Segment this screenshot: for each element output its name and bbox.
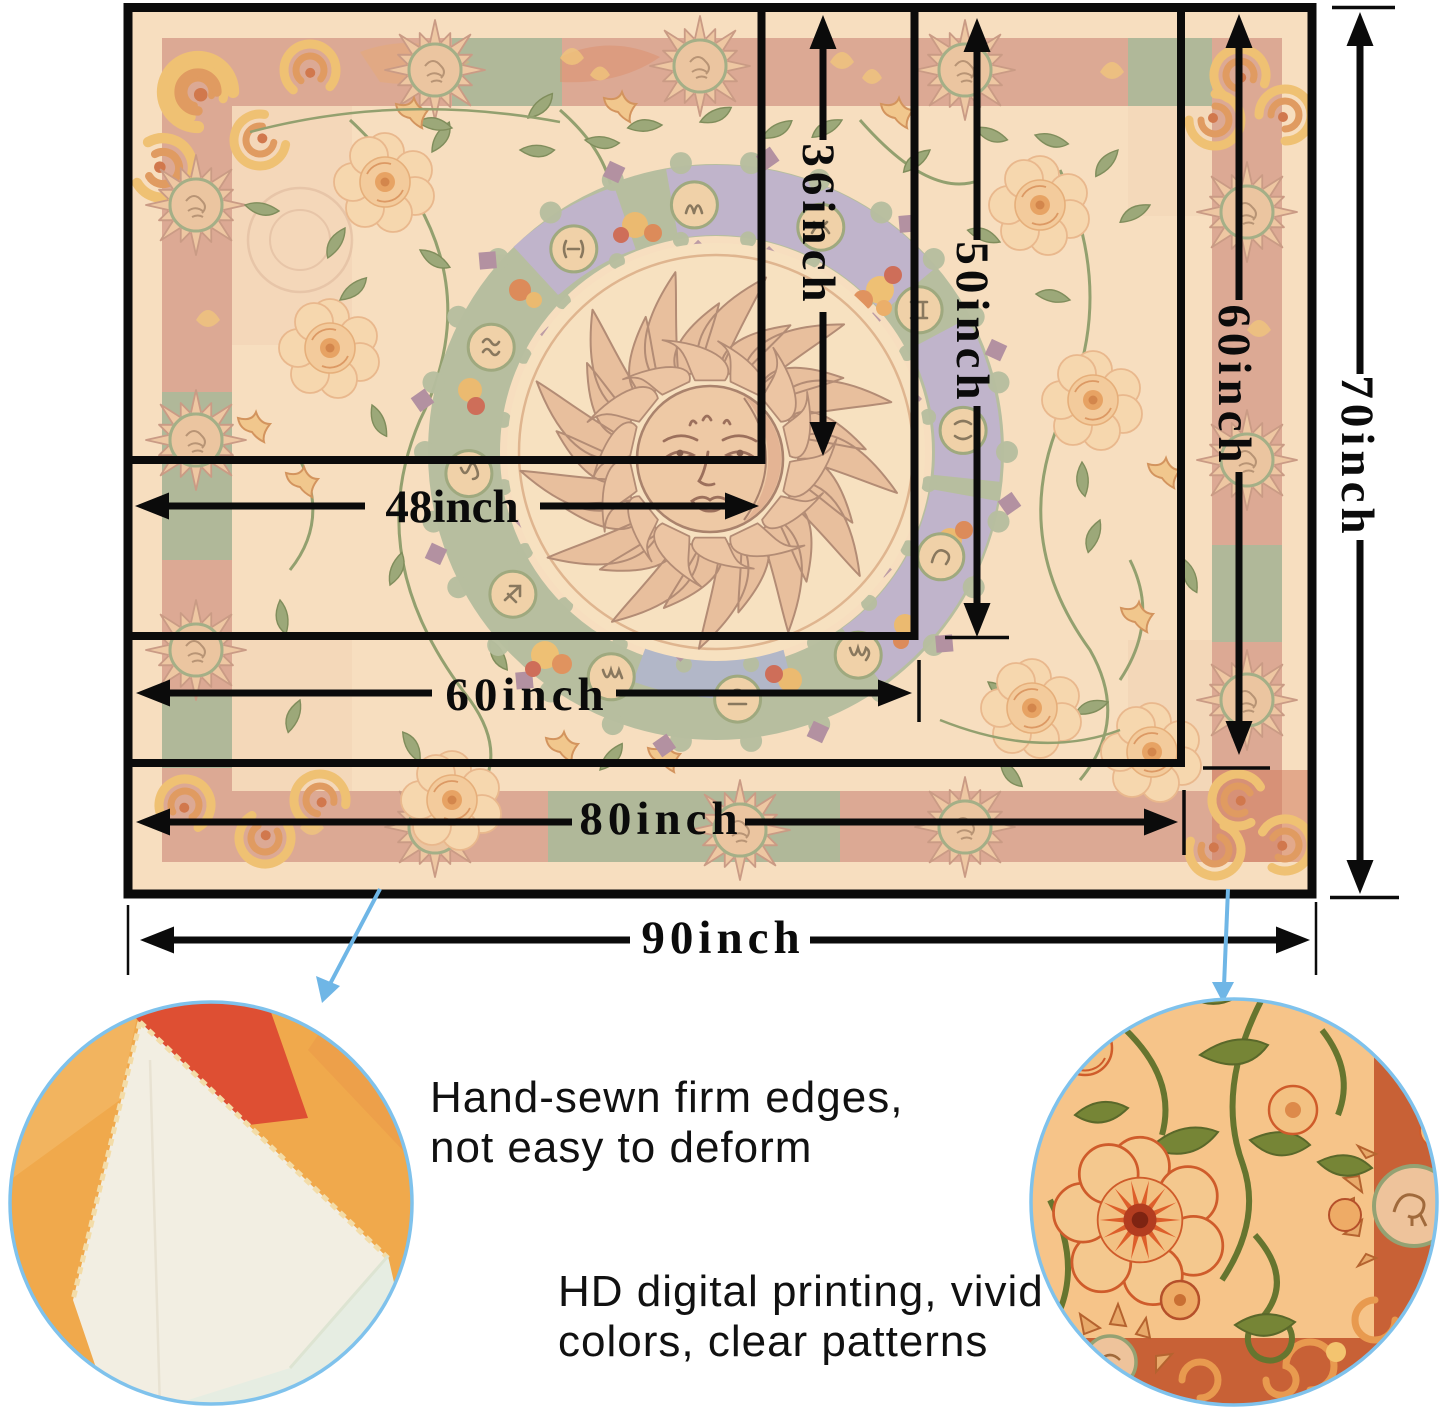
svg-text:60inch: 60inch (1208, 304, 1260, 467)
svg-text:90inch: 90inch (641, 912, 804, 964)
svg-text:48inch: 48inch (385, 481, 518, 533)
svg-text:80inch: 80inch (579, 793, 742, 845)
svg-text:colors, clear patterns: colors, clear patterns (558, 1317, 988, 1366)
svg-text:Hand-sewn firm edges,: Hand-sewn firm edges, (430, 1073, 903, 1122)
svg-text:60inch: 60inch (445, 669, 608, 721)
svg-text:70inch: 70inch (1331, 375, 1383, 538)
svg-text:HD digital printing, vivid: HD digital printing, vivid (558, 1267, 1044, 1316)
svg-text:not easy to deform: not easy to deform (430, 1123, 812, 1172)
svg-text:36inch: 36inch (792, 143, 844, 306)
svg-text:50inch: 50inch (946, 241, 998, 404)
